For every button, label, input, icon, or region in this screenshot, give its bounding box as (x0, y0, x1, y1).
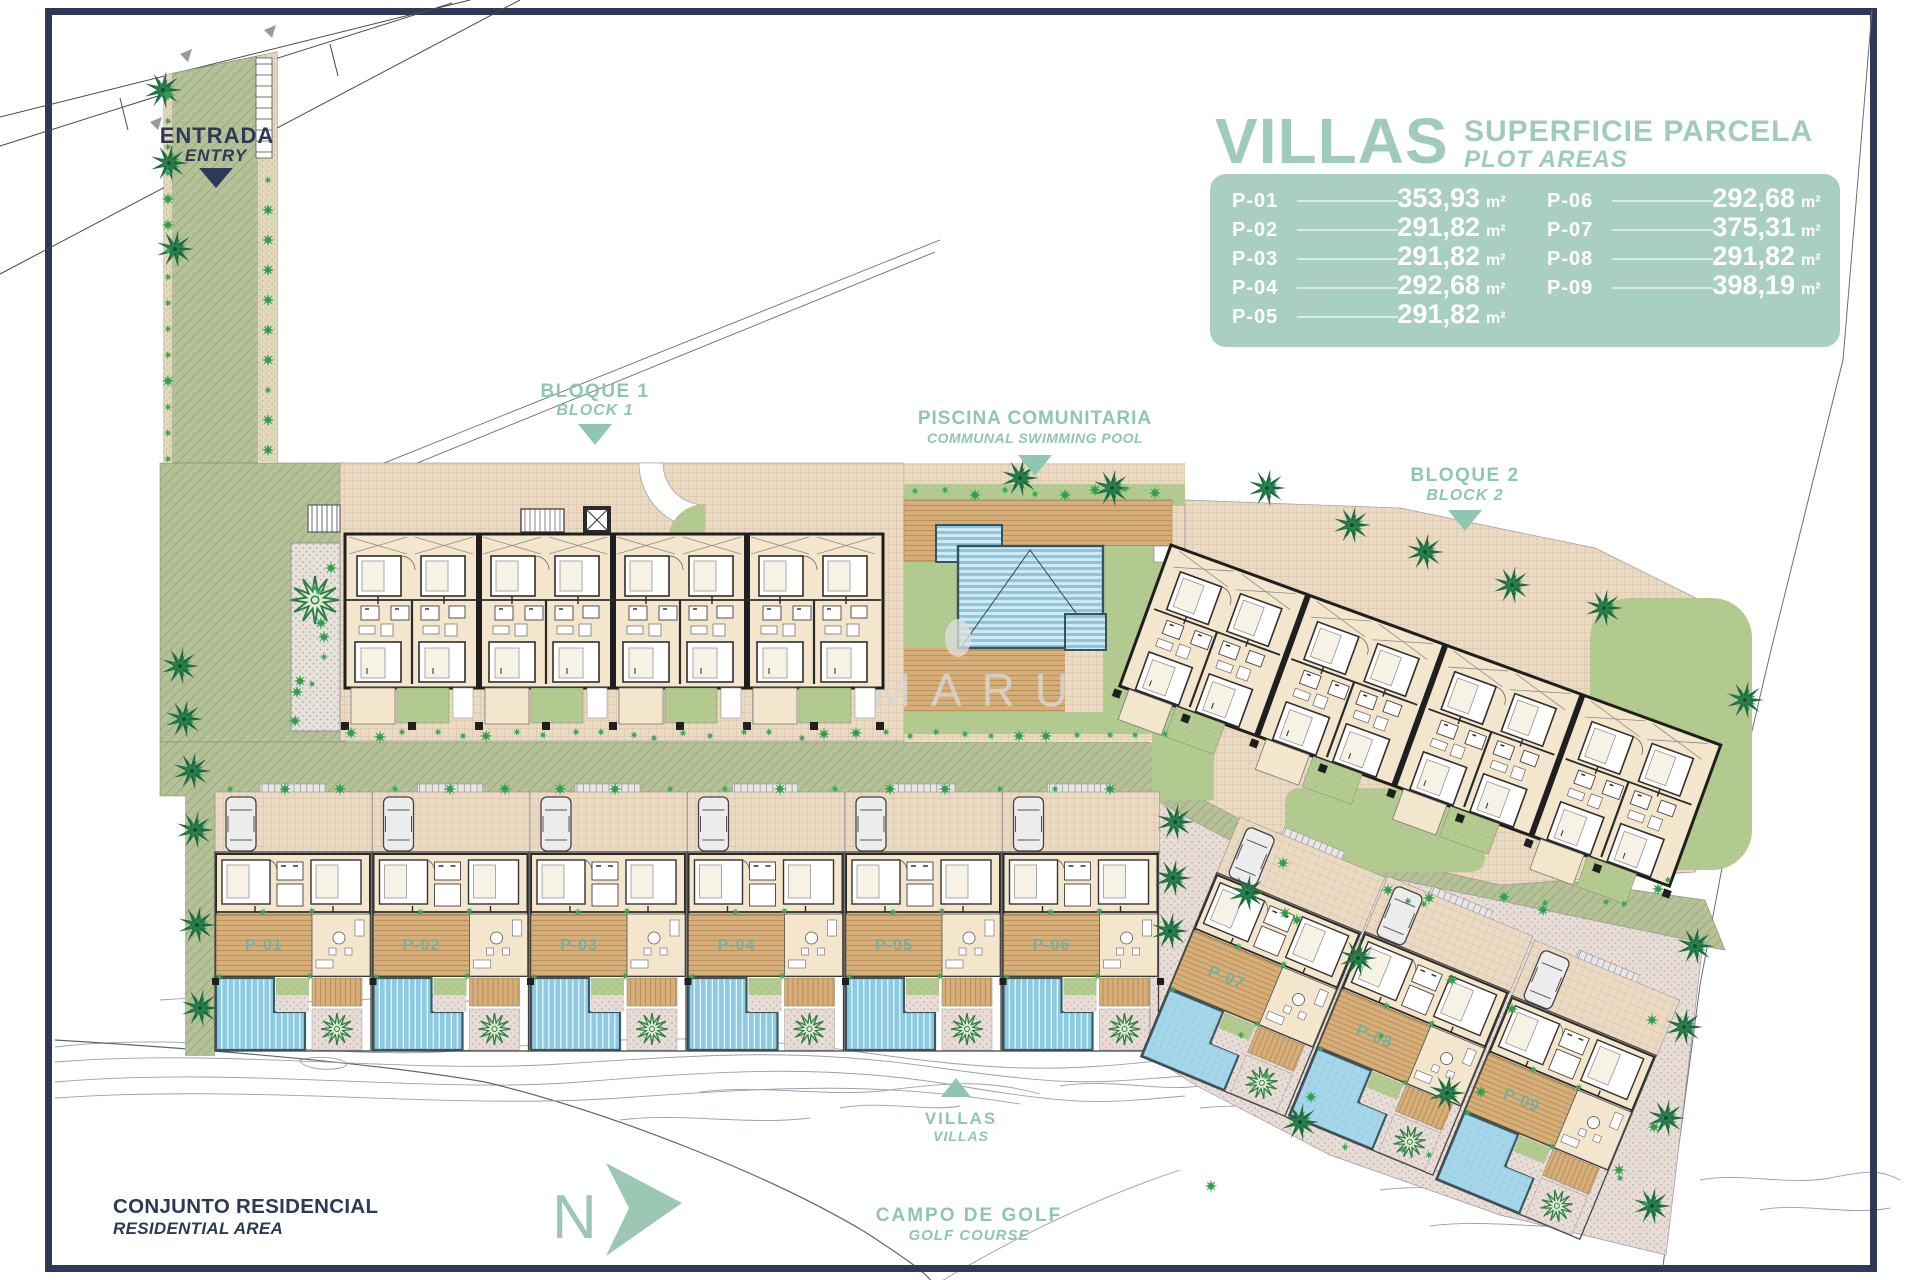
svg-text:m²: m² (1801, 252, 1821, 269)
svg-text:m²: m² (1486, 310, 1506, 327)
svg-text:m²: m² (1801, 281, 1821, 298)
svg-text:P-02: P-02 (403, 937, 441, 954)
svg-text:292,68: 292,68 (1397, 270, 1480, 300)
svg-text:ENTRADA: ENTRADA (160, 123, 275, 148)
svg-text:291,82: 291,82 (1397, 241, 1480, 271)
svg-text:P-04: P-04 (718, 937, 756, 954)
svg-text:291,82: 291,82 (1397, 299, 1480, 329)
svg-text:291,82: 291,82 (1712, 241, 1795, 271)
svg-text:P-07: P-07 (1547, 219, 1593, 241)
svg-text:SUPERFICIE PARCELA: SUPERFICIE PARCELA (1464, 115, 1813, 148)
svg-text:P-06: P-06 (1033, 937, 1071, 954)
svg-text:P-01: P-01 (1232, 190, 1278, 212)
svg-text:m²: m² (1486, 194, 1506, 211)
svg-text:P-04: P-04 (1232, 277, 1278, 299)
svg-text:P-02: P-02 (1232, 219, 1278, 241)
svg-text:RESIDENTIAL AREA: RESIDENTIAL AREA (113, 1219, 283, 1238)
svg-text:m²: m² (1486, 281, 1506, 298)
svg-text:m²: m² (1801, 194, 1821, 211)
svg-text:BLOCK 1: BLOCK 1 (556, 402, 633, 419)
svg-text:PLOT AREAS: PLOT AREAS (1464, 146, 1628, 173)
svg-text:353,93: 353,93 (1397, 183, 1480, 213)
svg-text:P-03: P-03 (560, 937, 598, 954)
svg-text:BLOQUE 1: BLOQUE 1 (540, 381, 649, 402)
svg-text:m²: m² (1486, 252, 1506, 269)
svg-text:P-06: P-06 (1547, 190, 1593, 212)
svg-text:PISCINA COMUNITARIA: PISCINA COMUNITARIA (918, 408, 1152, 429)
svg-text:VILLAS: VILLAS (1215, 105, 1449, 177)
svg-text:P-05: P-05 (875, 937, 913, 954)
svg-text:398,19: 398,19 (1712, 270, 1795, 300)
svg-text:P-09: P-09 (1547, 277, 1593, 299)
svg-text:BLOCK 2: BLOCK 2 (1426, 487, 1503, 504)
svg-text:VILLAS: VILLAS (925, 1109, 997, 1128)
svg-text:291,82: 291,82 (1397, 212, 1480, 242)
svg-text:P-08: P-08 (1547, 248, 1593, 270)
svg-text:VILLAS: VILLAS (933, 1128, 989, 1144)
svg-text:GOLF COURSE: GOLF COURSE (908, 1227, 1029, 1244)
svg-text:375,31: 375,31 (1712, 212, 1795, 242)
svg-text:N: N (552, 1183, 597, 1252)
svg-text:P-01: P-01 (245, 937, 283, 954)
svg-text:m²: m² (1486, 223, 1506, 240)
svg-text:BLOQUE 2: BLOQUE 2 (1410, 465, 1519, 486)
svg-text:292,68: 292,68 (1712, 183, 1795, 213)
svg-text:m²: m² (1801, 223, 1821, 240)
svg-text:ENTRY: ENTRY (185, 146, 248, 165)
svg-text:P-05: P-05 (1232, 306, 1278, 328)
svg-text:P-03: P-03 (1232, 248, 1278, 270)
svg-text:COMMUNAL SWIMMING POOL: COMMUNAL SWIMMING POOL (927, 430, 1143, 446)
svg-text:CAMPO DE GOLF: CAMPO DE GOLF (876, 1205, 1062, 1226)
svg-text:CONJUNTO RESIDENCIAL: CONJUNTO RESIDENCIAL (113, 1195, 378, 1218)
